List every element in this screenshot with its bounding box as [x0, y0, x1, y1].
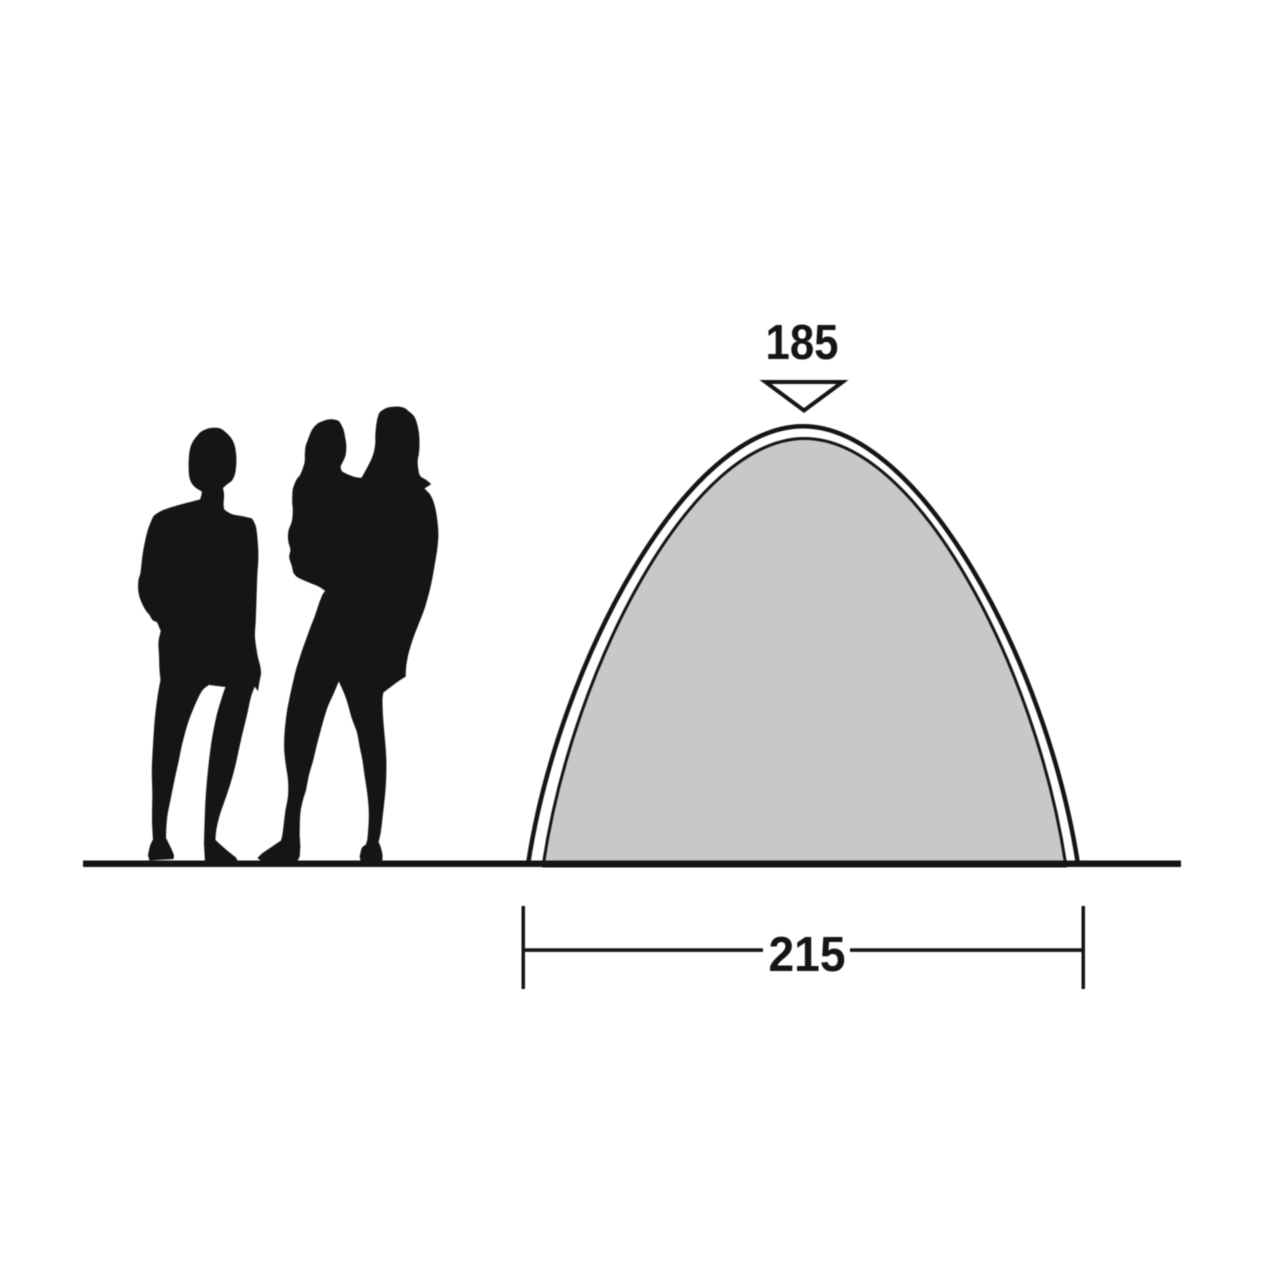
- svg-text:215: 215: [769, 928, 846, 982]
- svg-text:185: 185: [766, 316, 839, 370]
